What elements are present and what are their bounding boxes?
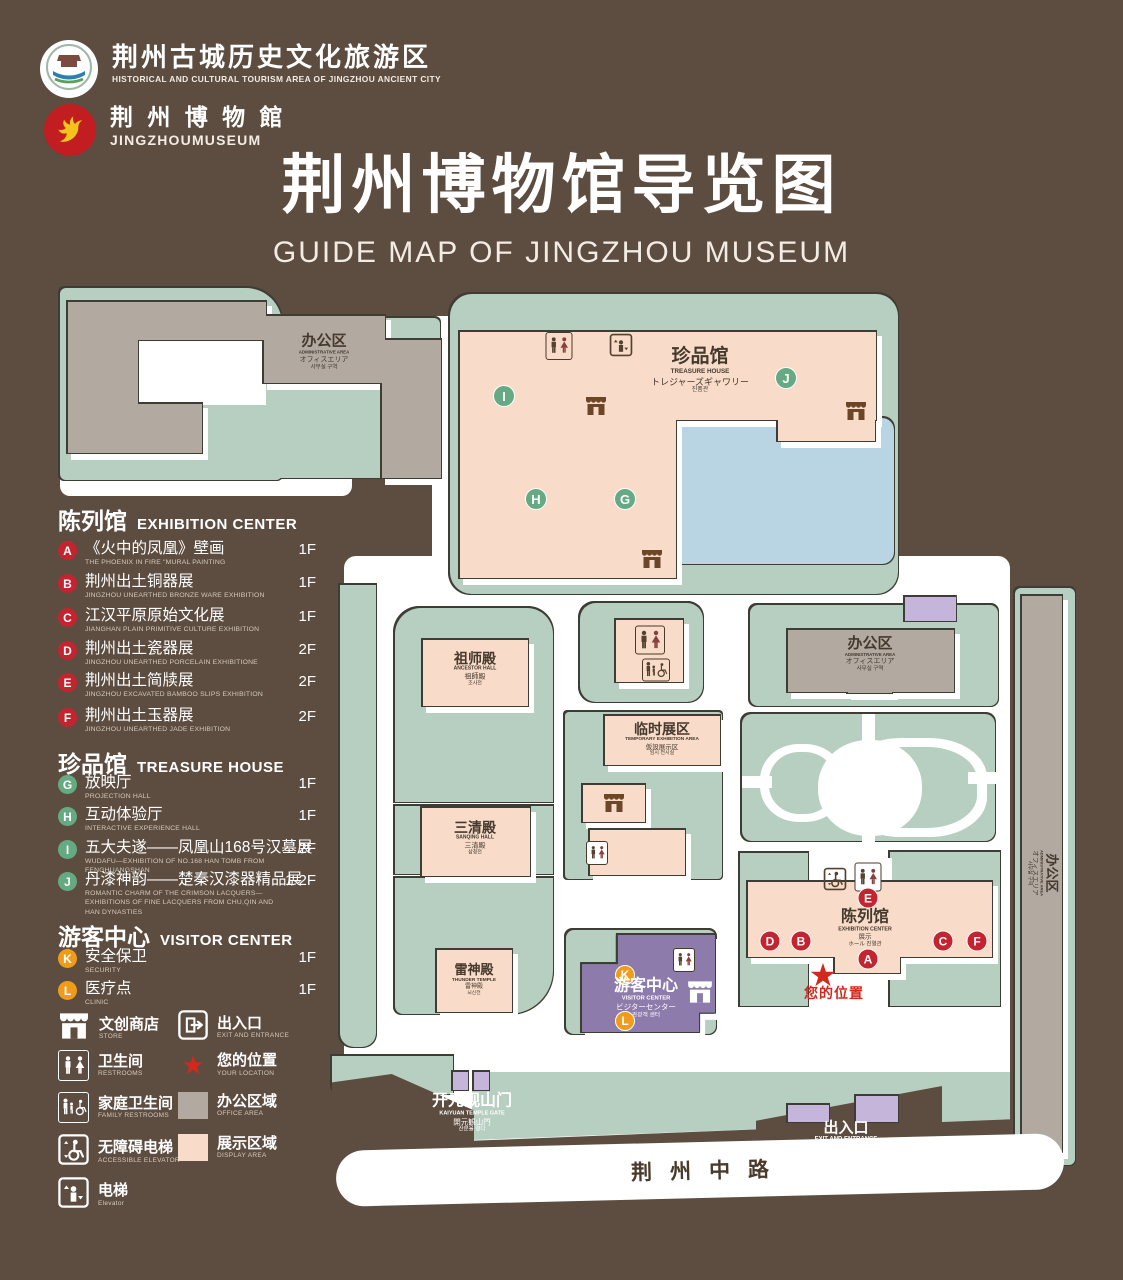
badge-k: K: [58, 949, 77, 968]
floor-d: 2F: [298, 641, 316, 658]
gate-house-bottom: [856, 1096, 898, 1122]
courtyard: [140, 338, 266, 405]
garden-path: [968, 772, 998, 784]
marker-a: A: [858, 949, 879, 970]
marker-g: G: [614, 488, 636, 510]
gate-pillar: [474, 1072, 489, 1090]
symbol-family-restrooms: 家庭卫生间FAMILY RESTROOMS: [58, 1092, 173, 1123]
restroom-icon: [635, 626, 665, 655]
label-admin-strip: 办公区 ADMINISTRATIVE AREA オフィスエリア 사무실 구역: [1026, 850, 1059, 896]
badge-a: A: [58, 541, 77, 560]
office-area-swatch: [178, 1092, 208, 1119]
garden-path: [862, 830, 875, 842]
legend-item-j: J 丹漆神韵——楚秦汉漆器精品展ROMANTIC CHARM OF THE CR…: [58, 871, 338, 917]
label-ancestor-hall: 祖师殿 ANCESTOR HALL 祖師殿 조사전: [454, 651, 497, 688]
guide-map-poster: 荆州古城历史文化旅游区 HISTORICAL AND CULTURAL TOUR…: [0, 0, 1123, 1280]
restroom-icon: [673, 948, 695, 972]
legend-item-h: H 互动体验厅INTERACTIVE EXPERIENCE HALL 1F: [58, 806, 338, 833]
symbol-exit: 出入口EXIT AND ENTRANCE: [178, 1010, 289, 1045]
badge-j: J: [58, 872, 77, 891]
symbol-location: ★ 您的位置YOUR LOCATION: [178, 1052, 277, 1078]
store-icon: [641, 549, 663, 569]
marker-b: B: [791, 931, 812, 952]
your-location-icon: ★: [178, 1052, 208, 1078]
floor-f: 2F: [298, 708, 316, 725]
floor-e: 2F: [298, 673, 316, 690]
marker-d: D: [760, 931, 781, 952]
legend-item-a: A 《火中的凤凰》壁画THE PHOENIX IN FIRE "MURAL PA…: [58, 540, 338, 567]
label-exit-bottom: 出入口 EXIT AND ENTRANCE 出入口 출입구: [815, 1120, 878, 1159]
your-location-label: 您的位置: [804, 983, 864, 1003]
gate-pillar: [453, 1072, 468, 1090]
accessible-elevator-icon: [824, 868, 847, 891]
label-visitor-center: 游客中心 VISITOR CENTER ビジターセンター 관광객 센터: [614, 977, 678, 1018]
family-restroom-icon: [642, 659, 670, 682]
symbol-store: 文创商店STORE: [58, 1012, 159, 1045]
symbol-accessible-elevator: 无障碍电梯ACCESSIBLE ELEVATOR: [58, 1134, 180, 1170]
label-gate: 开元观山门 KAIYUAN TEMPLE GATE 開元観山門 산문을 열다: [432, 1093, 512, 1134]
elevator-icon: [58, 1177, 89, 1213]
label-thunder-temple: 雷神殿 THUNDER TEMPLE 雷神殿 뇌신전: [452, 963, 496, 997]
legend-item-d: D 荆州出土瓷器展JINGZHOU UNEARTHED PORCELAIN EX…: [58, 640, 338, 667]
badge-d: D: [58, 641, 77, 660]
floor-i: 2F: [298, 840, 316, 857]
road: 荆州中路: [335, 1133, 1064, 1207]
floor-k: 1F: [298, 949, 316, 966]
label-sanqing-hall: 三清殿 SANQING HALL 三清殿 삼청전: [454, 820, 496, 857]
marker-f: F: [967, 931, 988, 952]
floor-l: 1F: [298, 981, 316, 998]
legend-section-exhibition: 陈列馆 EXHIBITION CENTER: [58, 502, 297, 536]
green-strip-small: [563, 434, 651, 462]
badge-e: E: [58, 673, 77, 692]
family-restroom-icon: [58, 1092, 89, 1123]
green-left-strip: [340, 585, 376, 1047]
legend-item-k: K 安全保卫SECURITY 1F: [58, 948, 338, 975]
badge-c: C: [58, 608, 77, 627]
accessible-elevator-icon: [58, 1134, 89, 1170]
label-admin-right: 办公区 ADMINISTRATIVE AREA オフィスエリア 사무실 구역: [845, 635, 896, 673]
symbol-elevator: 电梯Elevator: [58, 1177, 128, 1213]
exit-icon: [178, 1010, 208, 1045]
symbol-restrooms: 卫生间RESTROOMS: [58, 1050, 143, 1081]
restroom-icon: [58, 1050, 89, 1081]
marker-j: J: [775, 367, 797, 389]
legend-item-b: B 荆州出土铜器展JINGZHOU UNEARTHED BRONZE WARE …: [58, 573, 338, 600]
badge-f: F: [58, 708, 77, 727]
floor-b: 1F: [298, 574, 316, 591]
marker-i: I: [493, 385, 515, 407]
label-temporary: 临时展区 TEMPORARY EXHIBITION AREA 仮設展示区 임시 …: [625, 721, 699, 757]
green-exhibition-right: [890, 852, 1000, 1006]
symbol-office-area: 办公区域OFFICE AREA: [178, 1092, 277, 1119]
label-exhibition-center: 陈列馆 EXHIBITION CENTER 展示 ホール 진열관: [838, 908, 892, 947]
restroom-icon: [546, 332, 573, 360]
badge-l: L: [58, 981, 77, 1000]
path-top: [60, 430, 352, 496]
marker-h: H: [525, 488, 547, 510]
floor-c: 1F: [298, 608, 316, 625]
badge-g: G: [58, 775, 77, 794]
legend-item-e: E 荆州出土简牍展JINGZHOU EXCAVATED BAMBOO SLIPS…: [58, 672, 338, 699]
restroom-icon: [586, 841, 608, 865]
legend-item-f: F 荆州出土玉器展JINGZHOU UNEARTHED JADE EXHIBIT…: [58, 707, 338, 734]
marker-c: C: [933, 931, 954, 952]
store-icon: [58, 1012, 90, 1045]
store-icon: [585, 396, 607, 416]
label-exit-top: 出入口 EXIT AND ENTRANCE 出入口 출입구: [932, 563, 995, 602]
elevator-icon: [610, 334, 633, 357]
legend-item-l: L 医疗点CLINIC 1F: [58, 980, 338, 1007]
exit-icon: [911, 575, 931, 595]
badge-h: H: [58, 807, 77, 826]
green-exhibition-left: [740, 853, 808, 1006]
road-label: 荆州中路: [613, 1153, 788, 1187]
garden-pond: [818, 740, 922, 836]
store-icon: [687, 980, 713, 1004]
legend-section-visitor: 游客中心 VISITOR CENTER: [58, 918, 293, 952]
green-hall-block-1: [395, 608, 553, 802]
store-icon: [603, 793, 625, 813]
marker-e: E: [858, 888, 879, 909]
floor-g: 1F: [298, 775, 316, 792]
label-admin-top-left: 办公区 ADMINISTRATIVE AREA オフィスエリア 사무실 구역: [299, 333, 350, 372]
legend-item-c: C 江汉平原原始文化展JIANGHAN PLAIN PRIMITIVE CULT…: [58, 607, 338, 634]
floor-h: 1F: [298, 807, 316, 824]
label-treasure-house: 珍品馆 TREASURE HOUSE トレジャーズギャワリー 진품관: [651, 346, 749, 394]
store-icon: [845, 401, 867, 421]
floor-j: 1-2F: [285, 872, 316, 889]
garden-path: [742, 776, 772, 788]
badge-i: I: [58, 840, 77, 859]
display-area-swatch: [178, 1134, 208, 1161]
garden-path: [862, 714, 875, 742]
floor-a: 1F: [298, 541, 316, 558]
lake: [616, 418, 894, 564]
badge-b: B: [58, 574, 77, 593]
legend-item-g: G 放映厅PROJECTION HALL 1F: [58, 774, 338, 801]
symbol-display-area: 展示区域DISPLAY AREA: [178, 1134, 277, 1161]
